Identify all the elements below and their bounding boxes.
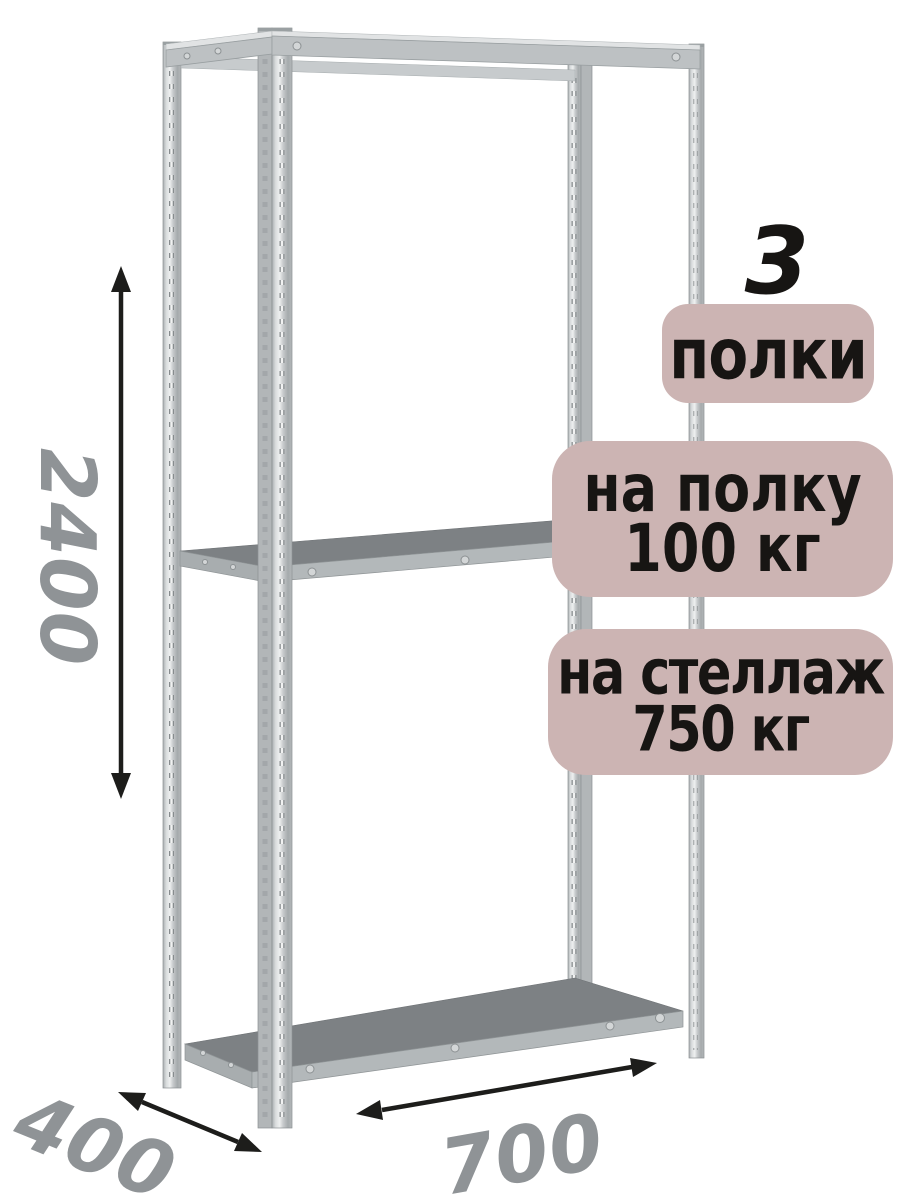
post-back-left	[163, 42, 181, 1088]
bolt	[201, 1051, 206, 1056]
bolt	[451, 1044, 459, 1052]
bolt	[308, 568, 316, 576]
arrow-head-right	[630, 1058, 657, 1077]
bolt	[184, 53, 190, 59]
bolt	[461, 556, 469, 564]
product-image-shelving-rack: 3 полки на полку 100 кг на стеллаж 750 к…	[0, 0, 900, 1200]
arrow-head-right	[234, 1133, 262, 1152]
post-cap	[258, 28, 292, 31]
shelf-count-badge-label: полки	[662, 312, 874, 395]
per-rack-load-badge: на стеллаж 750 кг	[548, 629, 893, 775]
bolt	[606, 1022, 614, 1030]
bolt	[672, 53, 680, 61]
rack-illustration	[0, 0, 900, 1200]
arrow-head-left	[118, 1092, 146, 1111]
per-rack-load-line2: 750 кг	[548, 696, 893, 766]
height-dimension-arrow	[111, 266, 131, 799]
shelf-count-number: 3	[697, 215, 857, 308]
per-shelf-load-badge: на полку 100 кг	[552, 441, 893, 597]
bolt	[229, 1063, 234, 1068]
arrow-head-left	[356, 1100, 383, 1120]
height-dimension-label: 2400	[22, 407, 110, 707]
shelf-count-badge: полки	[662, 304, 874, 403]
bolt	[215, 48, 221, 54]
bolt	[306, 1065, 314, 1073]
arrow-head-down	[111, 773, 131, 799]
bolt	[203, 560, 208, 565]
bolt	[293, 42, 301, 50]
bolt	[656, 1014, 665, 1023]
post-front-left	[258, 28, 292, 1128]
arrow-head-up	[111, 266, 131, 292]
bolt	[231, 565, 236, 570]
per-shelf-load-line2: 100 кг	[552, 512, 893, 585]
